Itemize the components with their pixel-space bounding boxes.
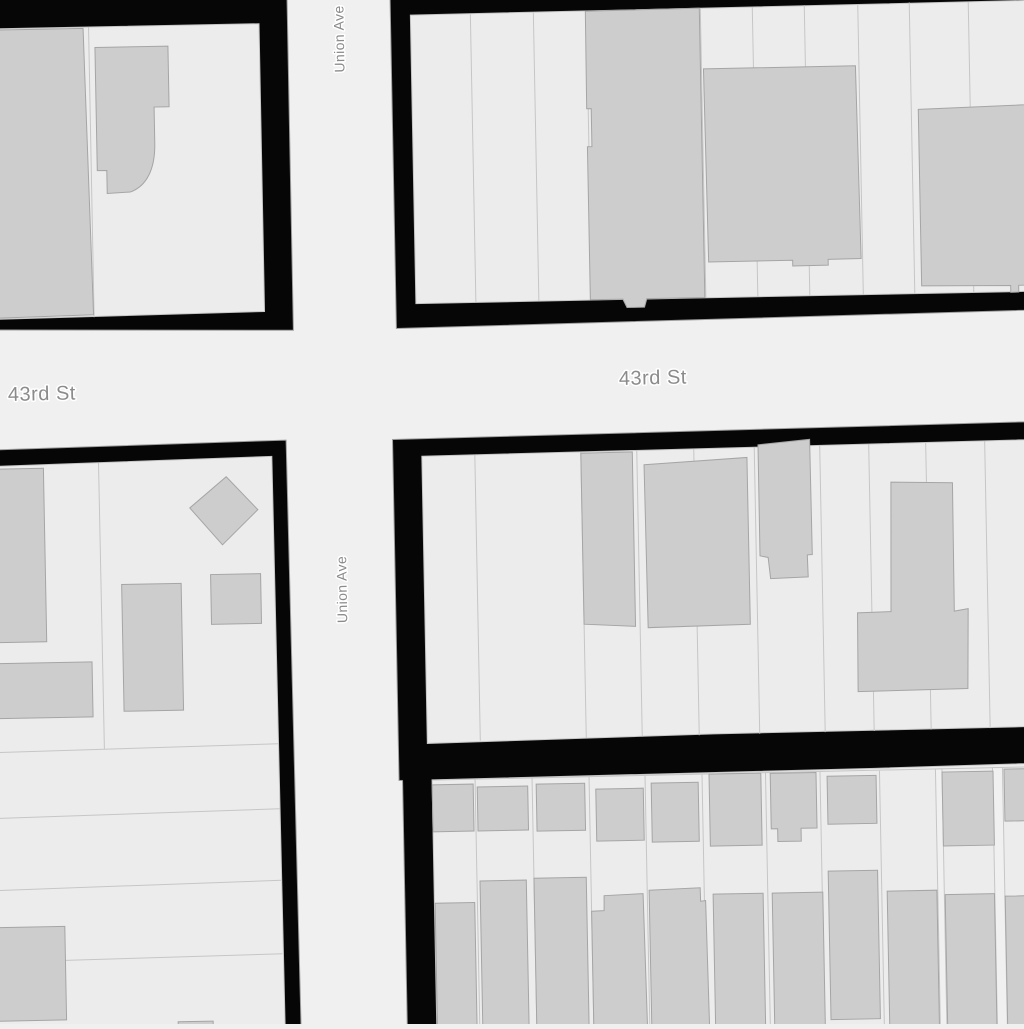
svg-text:Union Ave: Union Ave [330,5,347,72]
svg-text:43rd St: 43rd St [8,382,76,406]
svg-text:Union Ave: Union Ave [333,556,350,623]
svg-text:43rd St: 43rd St [619,366,687,390]
